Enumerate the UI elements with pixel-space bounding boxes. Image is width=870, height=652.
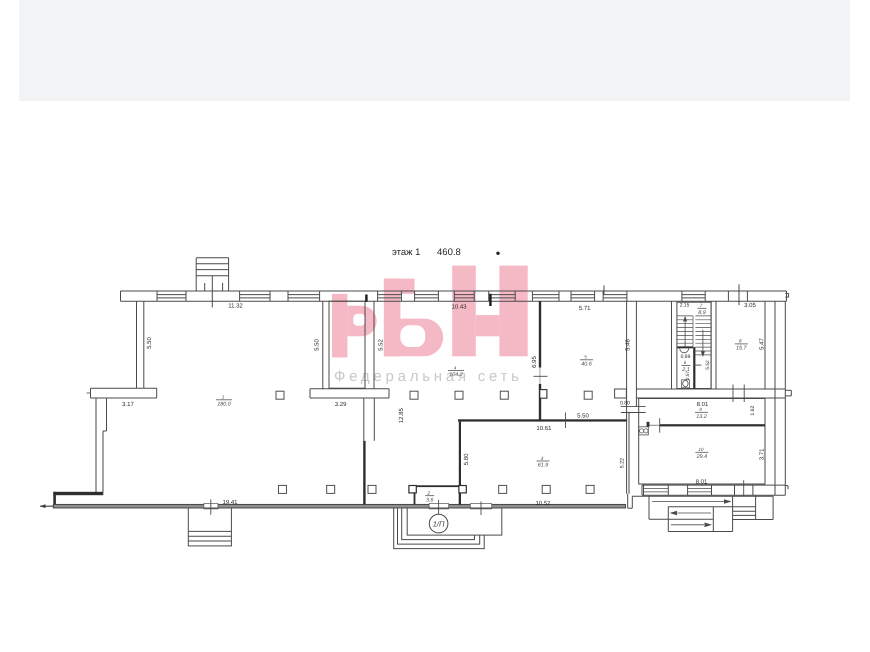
svg-text:6: 6 xyxy=(684,360,687,365)
svg-text:этаж 1: этаж 1 xyxy=(392,247,420,258)
svg-text:3: 3 xyxy=(541,456,544,461)
svg-text:29.4: 29.4 xyxy=(696,454,708,460)
svg-text:6.95: 6.95 xyxy=(531,356,538,368)
svg-text:5.52: 5.52 xyxy=(378,339,385,351)
svg-text:40.6: 40.6 xyxy=(581,361,592,367)
svg-text:10.52: 10.52 xyxy=(535,500,551,507)
svg-text:0.89: 0.89 xyxy=(681,354,691,360)
svg-text:11.32: 11.32 xyxy=(228,303,243,310)
svg-text:5.46: 5.46 xyxy=(625,339,632,351)
svg-text:5.50: 5.50 xyxy=(146,337,153,349)
svg-text:5: 5 xyxy=(584,355,587,360)
svg-text:12.85: 12.85 xyxy=(398,408,405,424)
svg-text:10.61: 10.61 xyxy=(536,425,552,432)
svg-text:10: 10 xyxy=(698,447,704,452)
svg-text:Федеральная сеть: Федеральная сеть xyxy=(334,368,523,385)
svg-text:5.80: 5.80 xyxy=(463,453,470,465)
svg-text:3.29: 3.29 xyxy=(335,401,347,408)
svg-text:3.17: 3.17 xyxy=(122,401,134,408)
svg-text:2.15: 2.15 xyxy=(680,303,690,309)
svg-text:8.9: 8.9 xyxy=(698,310,706,316)
svg-text:5.50: 5.50 xyxy=(314,339,321,351)
svg-text:3.71: 3.71 xyxy=(759,448,766,460)
svg-text:1/П: 1/П xyxy=(433,519,445,528)
svg-text:15.7: 15.7 xyxy=(736,346,747,352)
svg-text:1.62: 1.62 xyxy=(750,405,756,415)
svg-text:3.6: 3.6 xyxy=(426,497,434,503)
svg-text:5.52: 5.52 xyxy=(705,360,711,370)
svg-text:5.50: 5.50 xyxy=(577,412,589,419)
svg-text:2: 2 xyxy=(426,491,430,496)
svg-text:13.2: 13.2 xyxy=(696,414,707,420)
svg-text:1: 1 xyxy=(222,395,225,400)
svg-text:5.71: 5.71 xyxy=(579,305,591,312)
svg-text:180.0: 180.0 xyxy=(217,401,231,407)
svg-text:7: 7 xyxy=(700,303,703,308)
svg-text:2.1: 2.1 xyxy=(681,367,690,373)
svg-text:0.80: 0.80 xyxy=(620,401,630,407)
svg-text:61.9: 61.9 xyxy=(538,463,549,469)
svg-text:19.41: 19.41 xyxy=(222,499,238,506)
svg-text:4: 4 xyxy=(454,365,457,370)
svg-text:9: 9 xyxy=(699,407,702,412)
svg-text:5.47: 5.47 xyxy=(759,338,766,350)
svg-text:10.43: 10.43 xyxy=(451,304,467,311)
svg-text:8.01: 8.01 xyxy=(696,479,708,486)
svg-text:460.8: 460.8 xyxy=(437,247,461,258)
svg-text:5.22: 5.22 xyxy=(620,458,626,468)
svg-text:3.05: 3.05 xyxy=(744,302,756,309)
svg-text:8: 8 xyxy=(739,339,742,344)
svg-text:104.2: 104.2 xyxy=(449,372,463,378)
